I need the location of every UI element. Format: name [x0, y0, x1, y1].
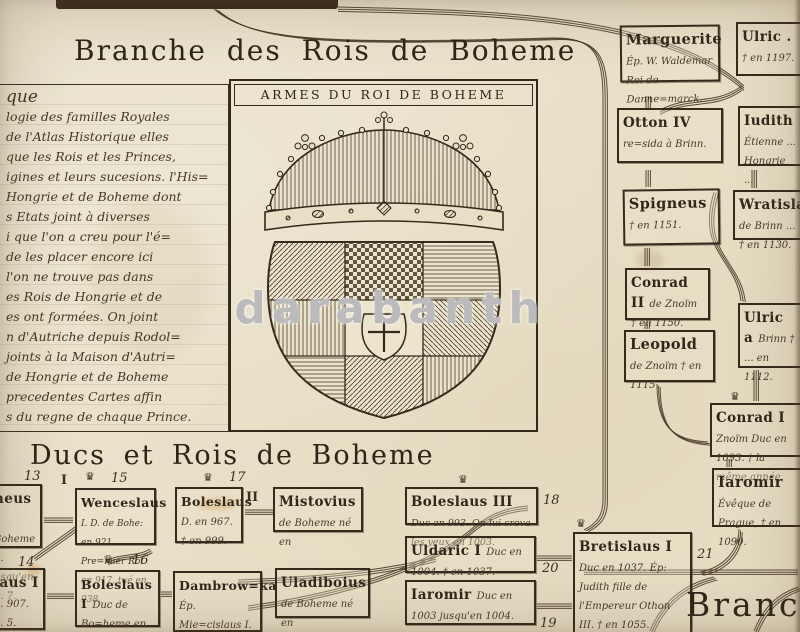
left-note-line: precedentes Cartes affin — [6, 387, 224, 407]
genealogy-box-leopold: Leopold de Znoïm † en 1115. — [624, 330, 715, 382]
left-note-line: joints à la Maison d'Autri= — [6, 347, 224, 367]
genealogy-box-spigneus-i-fragment: neus I Boheme ... usqu'en ... 7. — [0, 484, 42, 548]
person-name: Leopold — [630, 336, 697, 353]
person-detail: D. en 967. † en 999. — [181, 517, 233, 547]
generation-number: 16 — [132, 553, 149, 568]
left-note-line: logie des familles Royales — [6, 107, 224, 127]
crown-icon: ♛ — [203, 471, 213, 484]
crown-engraving — [265, 112, 503, 230]
genealogy-box-dambrowka: Dambrow=ka Ép. Mie=cislaus I. D. de Polo… — [173, 571, 262, 632]
genealogy-box-boleslaus-i: Boleslaus I Duc de Bo=heme en 938, † en … — [75, 570, 160, 627]
left-note-line: s du regne de chaque Prince. — [6, 407, 224, 427]
left-note-line: igines et leurs sucesions. l'His= — [6, 167, 224, 187]
genealogy-box-ulric-1197: Ulric . † en 1197. — [736, 22, 800, 76]
generation-number: 18 — [543, 493, 560, 508]
genealogy-box-wenceslaus: Wenceslaus I. D. de Bohe: en 921 Pre=mie… — [75, 488, 156, 545]
person-name: Conrad I — [716, 410, 785, 426]
person-name: Boleslaus III — [411, 494, 513, 510]
generation-number: 13 — [24, 469, 41, 484]
left-note-line: i que l'on a creu pour l'é= — [6, 227, 224, 247]
person-name: Iudith — [744, 113, 793, 129]
person-detail: de Brinn ... † en 1130. — [739, 221, 795, 251]
person-name: Otton IV — [623, 115, 691, 131]
person-name: Uladiboius — [281, 575, 366, 591]
generation-number: 14 — [18, 555, 35, 570]
genealogy-box-boleslaus-ii: Boleslaus D. en 967. † en 999. — [175, 487, 243, 543]
top-edge-box-fragment — [56, 0, 338, 9]
person-name: Dambrow=ka — [179, 578, 277, 593]
genealogy-box-conrad-ii: Conrad II de Znoïm † en 1150. — [625, 268, 710, 320]
left-note-line: es ont formées. On joint — [6, 307, 224, 327]
person-name: Mistovius — [279, 494, 356, 510]
person-detail: Duc de Bo=heme en 938, † en 967. — [81, 600, 152, 632]
left-note-line: es Rois de Hongrie et de — [6, 287, 224, 307]
person-name: Boleslaus — [181, 494, 252, 509]
arms-panel-title: ARMES DU ROI DE BOHEME — [234, 84, 533, 106]
genealogy-box-ulric-brinn: Ulric a Brinn † ... en 1112. — [738, 303, 800, 368]
genealogy-box-marguerite: Marguerite Ép. W. Waldemar Roi de Danne=… — [620, 24, 721, 82]
genealogy-box-iaromir-eveque: Iaromir Évêque de Prague, † en 1090. — [712, 468, 800, 527]
left-note-line: de l'Atlas Historique elles — [6, 127, 224, 147]
genealogy-box-iudith: Iudith Étienne ... Hongrie ... — [738, 106, 800, 166]
generation-number: 19 — [540, 616, 557, 631]
genealogy-box-conrad-i: Conrad I Znoïm Duc en 1093. † la même an… — [710, 403, 800, 457]
generation-number: 21 — [697, 547, 714, 562]
generation-number: 20 — [542, 561, 559, 576]
next-branch-title-fragment: Branc — [686, 585, 800, 624]
person-name: laus I — [0, 575, 39, 591]
person-detail: † en 1197. — [742, 53, 794, 64]
genealogy-box-uldaric-i: Uldaric I Duc en 1004. † en 1037. — [405, 536, 536, 573]
crown-icon: ♛ — [85, 470, 95, 483]
left-note-line: l'on ne trouve pas dans — [6, 267, 224, 287]
person-detail: Ép. Mie=cislaus I. D. de Pologne ... — [179, 601, 252, 632]
crown-icon: ♛ — [576, 517, 586, 530]
person-name: Marguerite — [626, 30, 722, 48]
crown-icon: ♛ — [458, 473, 468, 486]
coat-of-arms-engraving — [233, 108, 536, 430]
person-name: Wenceslaus — [81, 495, 167, 510]
generation-number: 15 — [111, 471, 128, 486]
person-name: Spigneus — [629, 195, 707, 213]
person-name: Iaromir — [718, 474, 783, 491]
engraved-genealogy-page: Branche des Rois de Boheme que logie des… — [0, 0, 800, 632]
left-note-panel: que logie des familles Royales de l'Atla… — [0, 84, 229, 432]
genealogy-box-otton-iv: Otton IV re=sida à Brinn. — [617, 108, 723, 163]
person-detail: Ép. W. Waldemar Roi de Danne=marck. — [626, 55, 712, 105]
left-note-heading: que — [6, 87, 224, 107]
person-detail: ... 907. ... 5. — [0, 599, 29, 629]
arms-panel: ARMES DU ROI DE BOHEME — [229, 79, 538, 432]
generation-number: 17 — [229, 470, 246, 485]
page-title: Branche des Rois de Boheme — [74, 34, 570, 67]
person-detail: † en 1151. — [629, 220, 681, 232]
person-name: neus I — [0, 491, 31, 527]
person-name: Iaromir — [411, 587, 472, 603]
person-name: Bretislaus I — [579, 539, 672, 555]
crown-icon: ♛ — [103, 553, 113, 566]
person-name: Wratisla — [739, 197, 800, 213]
left-note-line: s Etats joint à diverses — [6, 207, 224, 227]
genealogy-box-uladiboius: Uladiboius de Boheme né en — [275, 568, 370, 618]
left-note-line: de les placer encore ici — [6, 247, 224, 267]
person-detail: Duc en 1037. Ép: Judith fille de l'Emper… — [579, 563, 670, 631]
genealogy-box-mistovius: Mistovius de Boheme né en — [273, 487, 363, 532]
genealogy-box-wratislaus: Wratisla de Brinn ... † en 1130. — [733, 190, 800, 240]
section-title: Ducs et Rois de Boheme — [30, 440, 435, 471]
genealogy-box-boleslaus-iii: Boleslaus III Duc en 993. On lui creva l… — [405, 487, 538, 525]
genealogy-box-iaromir-duc: Iaromir Duc en 1003 jusqu'en 1004. — [405, 580, 536, 625]
genealogy-box-bretislaus-i: Bretislaus I Duc en 1037. Ép: Judith fil… — [573, 532, 692, 632]
roman-mark: I — [61, 473, 67, 488]
roman-mark: II — [246, 490, 258, 505]
person-name: Ulric . — [742, 29, 792, 45]
crown-icon: ♛ — [730, 390, 740, 403]
left-note-line: n d'Autriche depuis Rodol= — [6, 327, 224, 347]
genealogy-box-laus-i-fragment: laus I ... 907. ... 5. — [0, 568, 45, 630]
person-name: Uldaric I — [411, 543, 481, 559]
left-note-line: Hongrie et de Boheme dont — [6, 187, 224, 207]
left-note-line: que les Rois et les Princes, — [6, 147, 224, 167]
genealogy-box-spigneus: Spigneus † en 1151. — [623, 188, 721, 245]
person-detail: re=sida à Brinn. — [623, 139, 706, 150]
shield-engraving — [268, 242, 500, 420]
left-note-line: de Hongrie et de Boheme — [6, 367, 224, 387]
